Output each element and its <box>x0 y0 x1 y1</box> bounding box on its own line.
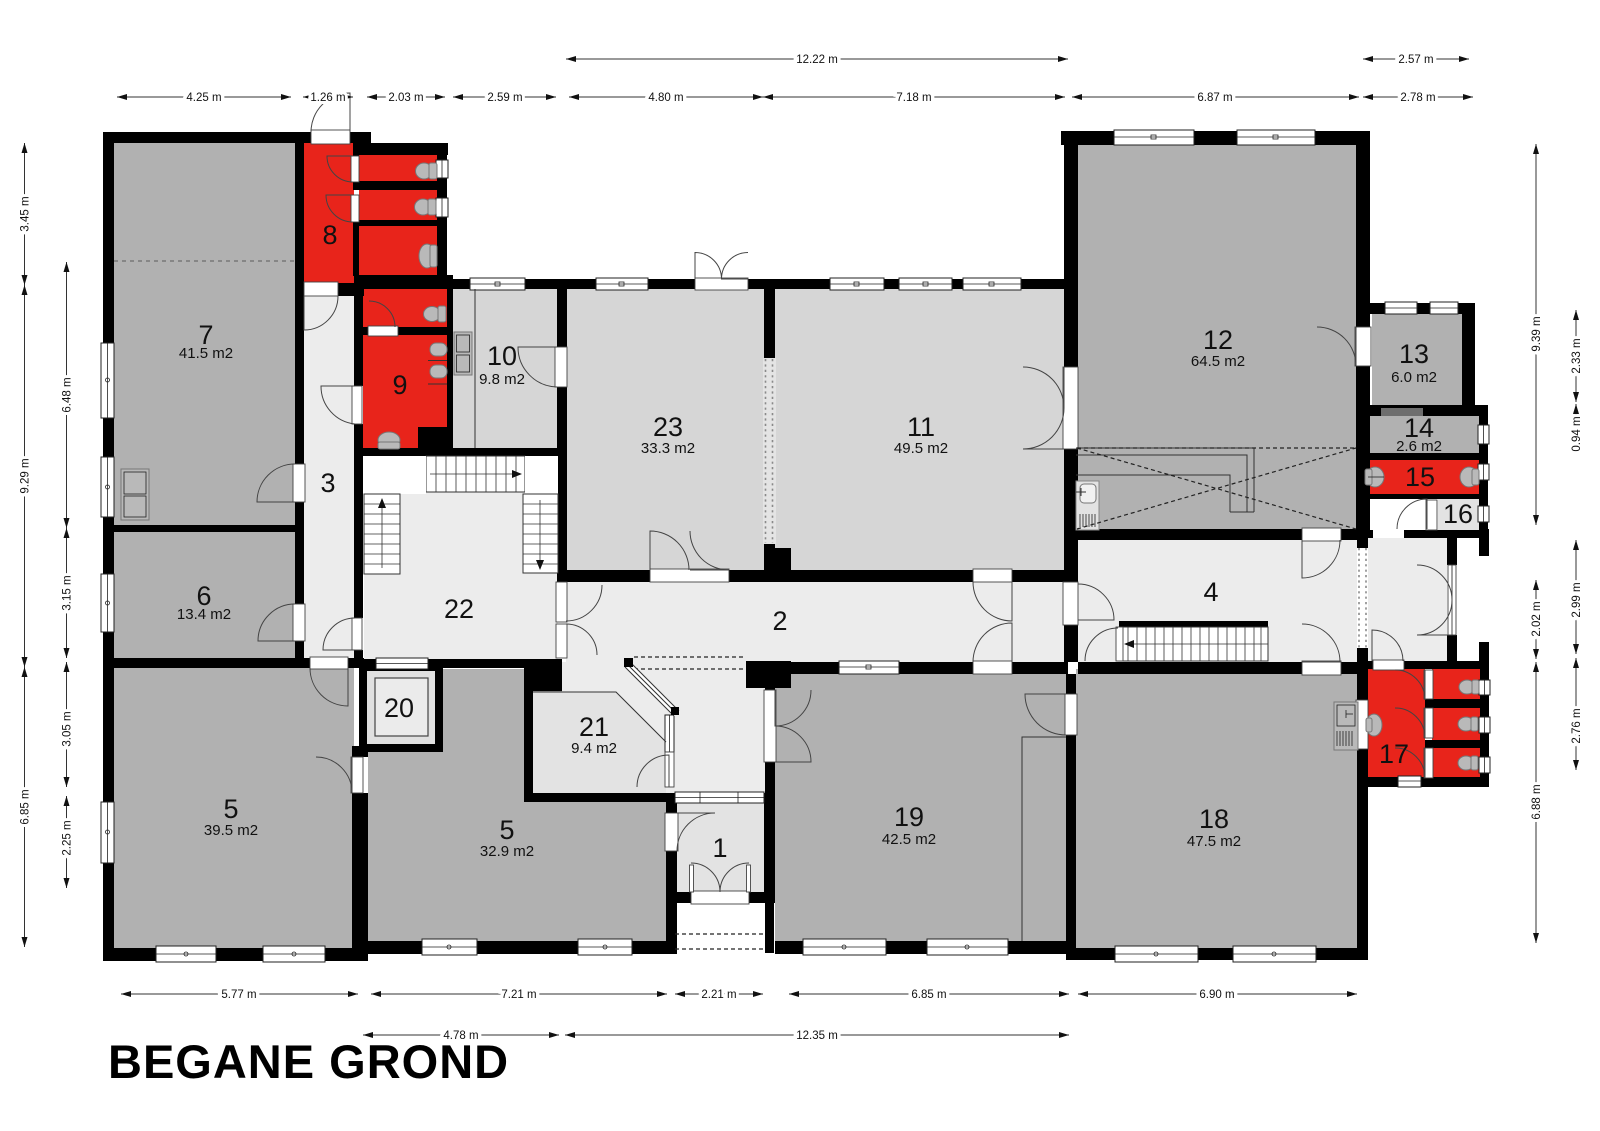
svg-text:13: 13 <box>1399 339 1429 369</box>
svg-text:6.85 m: 6.85 m <box>911 989 946 1001</box>
svg-text:20: 20 <box>384 693 414 723</box>
svg-text:21: 21 <box>579 712 609 742</box>
svg-text:6.87 m: 6.87 m <box>1197 92 1232 104</box>
svg-text:6.90 m: 6.90 m <box>1199 989 1234 1001</box>
svg-text:3.15 m: 3.15 m <box>62 575 74 610</box>
svg-text:1: 1 <box>712 833 727 863</box>
svg-text:19: 19 <box>894 802 924 832</box>
svg-text:33.3 m2: 33.3 m2 <box>641 440 695 457</box>
svg-text:18: 18 <box>1199 804 1229 834</box>
svg-text:4.80 m: 4.80 m <box>648 92 683 104</box>
svg-text:4.78 m: 4.78 m <box>443 1030 478 1042</box>
svg-text:12.22 m: 12.22 m <box>796 54 838 66</box>
svg-text:39.5 m2: 39.5 m2 <box>204 822 258 839</box>
svg-text:49.5 m2: 49.5 m2 <box>894 440 948 457</box>
svg-text:2.21 m: 2.21 m <box>701 989 736 1001</box>
svg-text:6.85 m: 6.85 m <box>20 789 32 824</box>
svg-text:64.5 m2: 64.5 m2 <box>1191 353 1245 370</box>
svg-text:BEGANE GROND: BEGANE GROND <box>108 1035 509 1088</box>
svg-text:3.45 m: 3.45 m <box>20 196 32 231</box>
svg-text:10: 10 <box>487 341 517 371</box>
svg-text:2.78 m: 2.78 m <box>1400 92 1435 104</box>
svg-text:2.59 m: 2.59 m <box>487 92 522 104</box>
svg-text:2.03 m: 2.03 m <box>388 92 423 104</box>
svg-text:2.57 m: 2.57 m <box>1398 54 1433 66</box>
svg-text:0.94 m: 0.94 m <box>1571 416 1583 451</box>
svg-text:41.5 m2: 41.5 m2 <box>179 345 233 362</box>
svg-text:23: 23 <box>653 412 683 442</box>
svg-text:6.0 m2: 6.0 m2 <box>1391 369 1437 386</box>
svg-text:3: 3 <box>320 468 335 498</box>
svg-text:3.05 m: 3.05 m <box>62 711 74 746</box>
svg-text:2.99 m: 2.99 m <box>1571 582 1583 617</box>
svg-text:9.29 m: 9.29 m <box>20 458 32 493</box>
svg-text:9.8 m2: 9.8 m2 <box>479 371 525 388</box>
svg-text:5.77 m: 5.77 m <box>221 989 256 1001</box>
svg-text:5: 5 <box>499 815 514 845</box>
svg-text:1.26 m: 1.26 m <box>310 92 345 104</box>
svg-text:32.9 m2: 32.9 m2 <box>480 843 534 860</box>
svg-text:11: 11 <box>907 412 935 442</box>
svg-text:2.76 m: 2.76 m <box>1571 708 1583 743</box>
svg-text:7.18 m: 7.18 m <box>896 92 931 104</box>
svg-text:9: 9 <box>392 370 407 400</box>
svg-text:12: 12 <box>1203 325 1233 355</box>
svg-text:12.35 m: 12.35 m <box>796 1030 838 1042</box>
svg-text:2.6 m2: 2.6 m2 <box>1396 438 1442 455</box>
svg-text:6.88 m: 6.88 m <box>1531 784 1543 819</box>
svg-text:4: 4 <box>1203 577 1218 607</box>
svg-text:7.21 m: 7.21 m <box>501 989 536 1001</box>
svg-text:13.4 m2: 13.4 m2 <box>177 606 231 623</box>
svg-text:2: 2 <box>772 606 787 636</box>
svg-text:9.39 m: 9.39 m <box>1531 316 1543 351</box>
svg-text:8: 8 <box>322 220 337 250</box>
svg-text:47.5 m2: 47.5 m2 <box>1187 833 1241 850</box>
svg-text:42.5 m2: 42.5 m2 <box>882 831 936 848</box>
svg-text:4.25 m: 4.25 m <box>186 92 221 104</box>
svg-text:17: 17 <box>1379 739 1409 769</box>
svg-text:2.25 m: 2.25 m <box>62 820 74 855</box>
svg-text:2.02 m: 2.02 m <box>1531 601 1543 636</box>
svg-text:5: 5 <box>223 794 238 824</box>
svg-text:9.4 m2: 9.4 m2 <box>571 740 617 757</box>
svg-text:6.48 m: 6.48 m <box>62 377 74 412</box>
svg-text:15: 15 <box>1405 462 1435 492</box>
svg-text:2.33 m: 2.33 m <box>1571 338 1583 373</box>
svg-text:16: 16 <box>1443 499 1473 529</box>
svg-text:22: 22 <box>444 594 474 624</box>
